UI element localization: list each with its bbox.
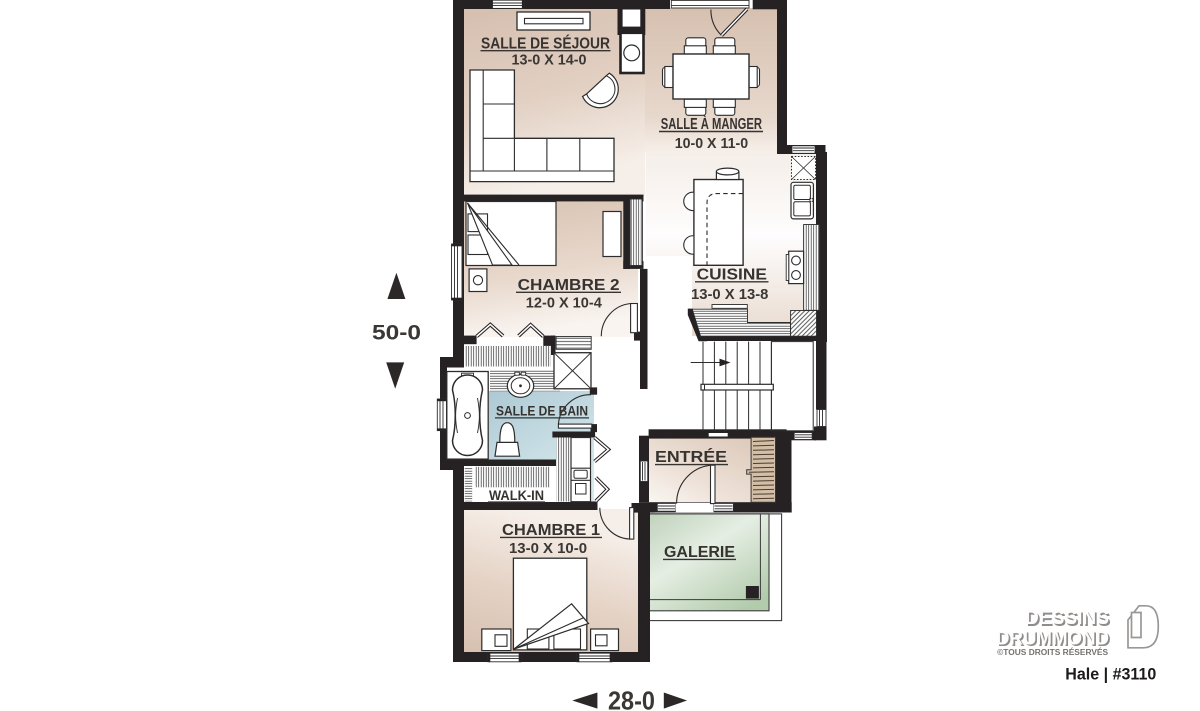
svg-text:CHAMBRE 2: CHAMBRE 2 — [518, 277, 620, 294]
svg-text:ENTRÉE: ENTRÉE — [655, 447, 727, 466]
svg-text:DRUMMOND: DRUMMOND — [996, 627, 1109, 649]
svg-text:CHAMBRE 1: CHAMBRE 1 — [502, 522, 600, 539]
svg-text:13-0 X 10-0: 13-0 X 10-0 — [509, 540, 587, 557]
svg-text:SALLE DE SÉJOUR: SALLE DE SÉJOUR — [481, 33, 610, 52]
svg-text:12-0 X 10-4: 12-0 X 10-4 — [526, 295, 603, 312]
svg-text:28-0: 28-0 — [608, 686, 655, 711]
svg-text:CUISINE: CUISINE — [697, 266, 768, 283]
svg-text:50-0: 50-0 — [372, 321, 421, 345]
svg-text:WALK-IN: WALK-IN — [489, 487, 544, 503]
svg-text:GALERIE: GALERIE — [664, 544, 735, 561]
svg-text:©TOUS DROITS RÉSERVÉS: ©TOUS DROITS RÉSERVÉS — [997, 648, 1108, 657]
svg-text:Hale | #3110: Hale | #3110 — [1065, 664, 1156, 683]
svg-text:10-0 X 11-0: 10-0 X 11-0 — [675, 135, 748, 152]
svg-text:13-0 X 13-8: 13-0 X 13-8 — [691, 286, 768, 303]
svg-text:SALLE À MANGER: SALLE À MANGER — [661, 114, 763, 133]
svg-text:13-0 X 14-0: 13-0 X 14-0 — [512, 52, 587, 69]
svg-text:SALLE DE BAIN: SALLE DE BAIN — [496, 403, 588, 419]
svg-text:DESSINS: DESSINS — [1025, 607, 1109, 629]
